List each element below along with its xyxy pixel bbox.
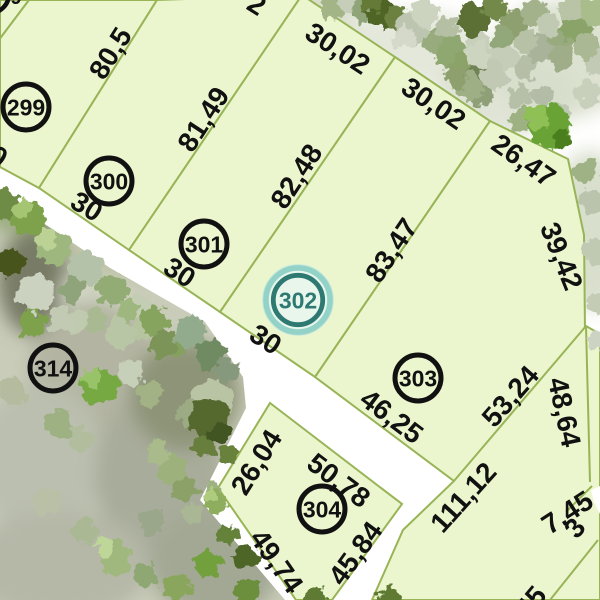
svg-text:9: 9 xyxy=(10,0,21,9)
svg-text:303: 303 xyxy=(399,366,437,392)
svg-text:302: 302 xyxy=(279,288,317,314)
svg-text:300: 300 xyxy=(90,169,128,195)
svg-text:304: 304 xyxy=(303,497,342,523)
svg-text:299: 299 xyxy=(7,95,45,121)
svg-text:301: 301 xyxy=(185,232,224,258)
svg-text:314: 314 xyxy=(34,356,73,382)
